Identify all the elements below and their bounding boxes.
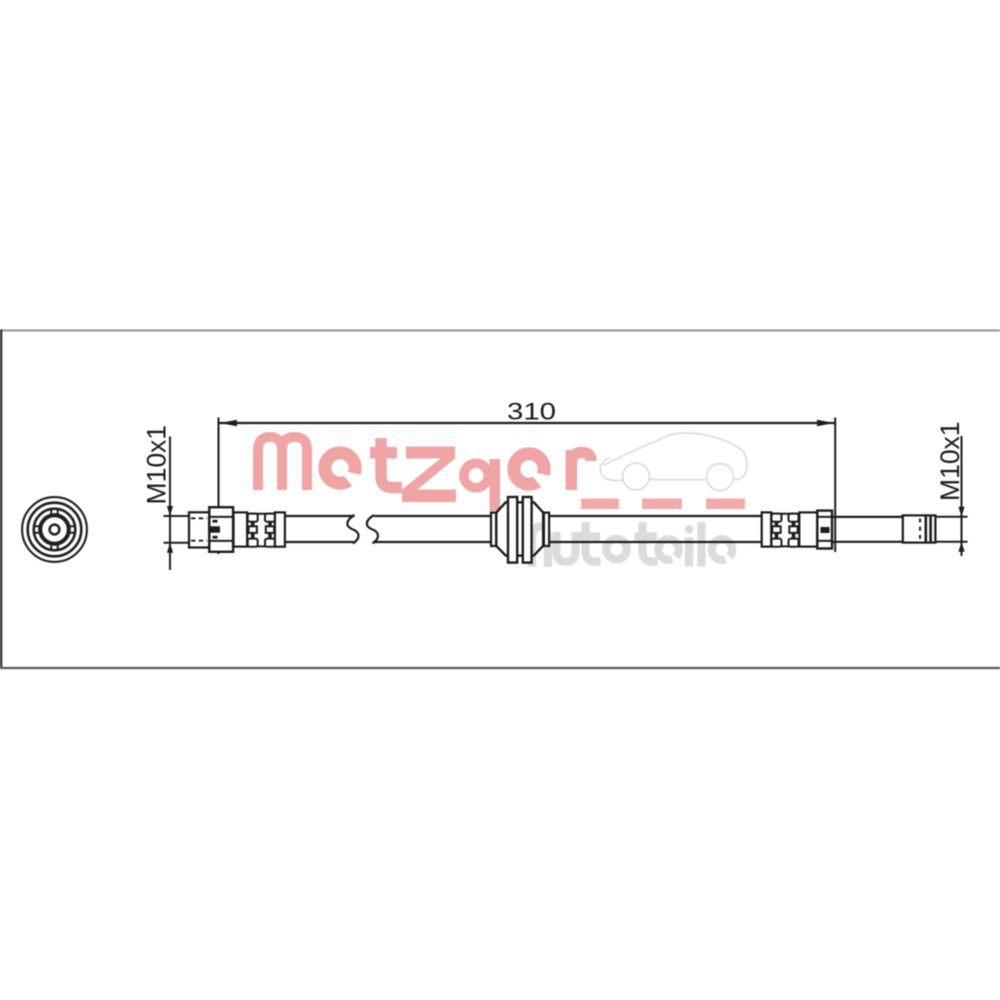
- svg-text:310: 310: [507, 399, 556, 426]
- svg-text:M10x1: M10x1: [142, 425, 172, 505]
